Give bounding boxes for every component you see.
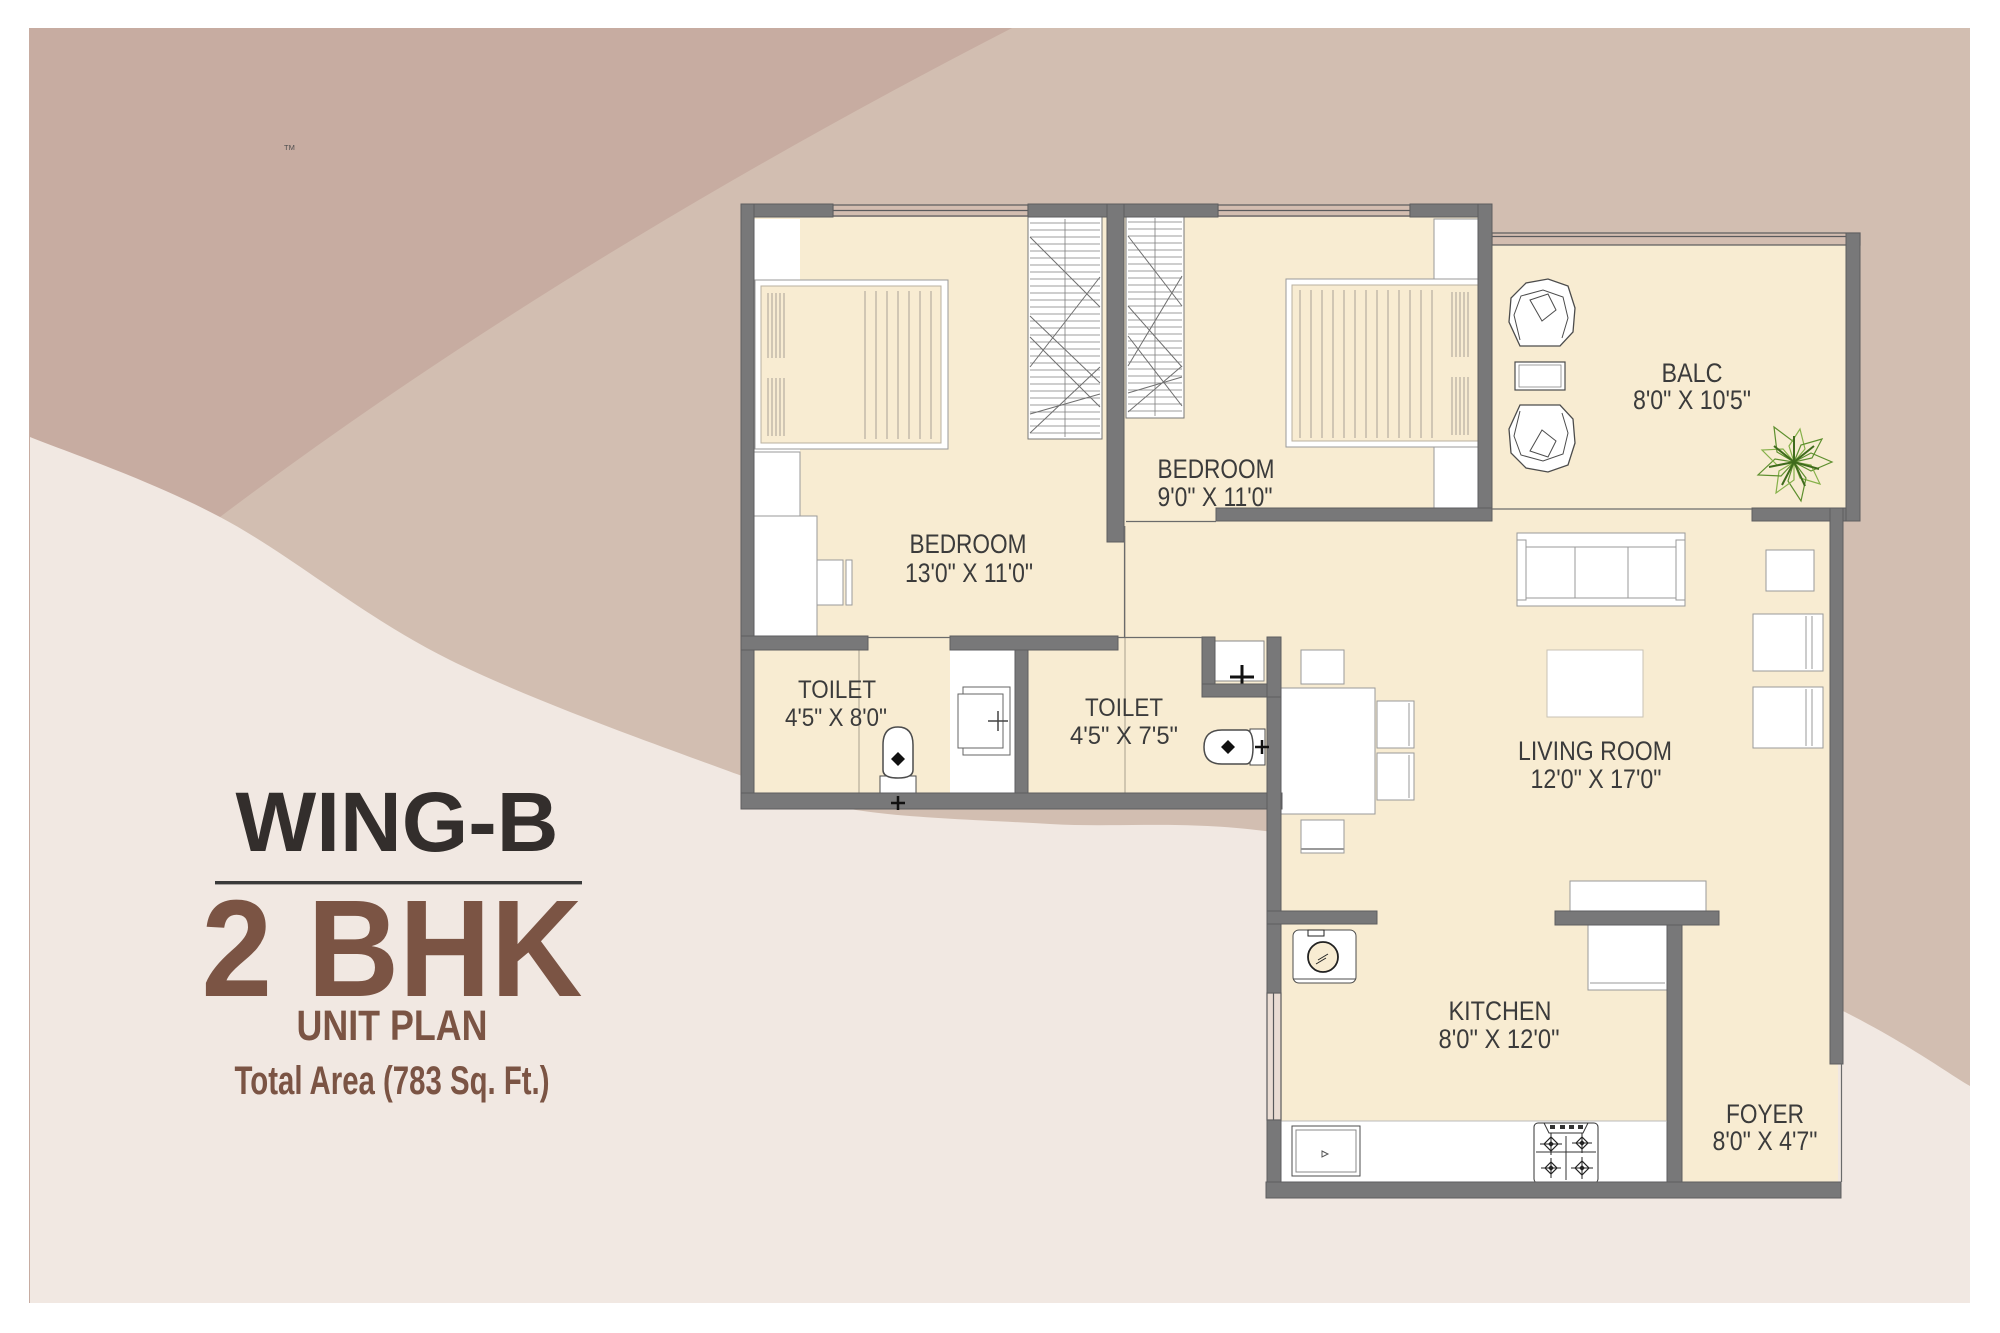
svg-text:8'0" X 10'5": 8'0" X 10'5"	[1633, 385, 1751, 415]
svg-text:LIVING ROOM: LIVING ROOM	[1518, 736, 1672, 766]
svg-text:4'5" X 8'0": 4'5" X 8'0"	[785, 704, 887, 732]
svg-text:TOILET: TOILET	[1085, 694, 1163, 722]
svg-text:8'0" X 12'0": 8'0" X 12'0"	[1439, 1024, 1560, 1054]
svg-text:8'0" X 4'7": 8'0" X 4'7"	[1713, 1126, 1818, 1156]
svg-text:TM: TM	[284, 143, 295, 152]
svg-text:13'0" X 11'0": 13'0" X 11'0"	[905, 558, 1033, 588]
svg-text:UNIT PLAN: UNIT PLAN	[297, 1002, 488, 1050]
svg-text:9'0" X 11'0": 9'0" X 11'0"	[1158, 482, 1273, 512]
svg-text:BEDROOM: BEDROOM	[1158, 454, 1275, 484]
svg-text:4'5" X 7'5": 4'5" X 7'5"	[1070, 722, 1178, 750]
svg-text:BEDROOM: BEDROOM	[910, 529, 1027, 559]
svg-text:Total Area (783 Sq. Ft.): Total Area (783 Sq. Ft.)	[235, 1059, 550, 1103]
svg-text:FOYER: FOYER	[1726, 1099, 1804, 1129]
svg-text:KITCHEN: KITCHEN	[1449, 996, 1552, 1026]
svg-text:TOILET: TOILET	[798, 676, 876, 704]
svg-text:BALC: BALC	[1662, 358, 1723, 388]
svg-text:WING-B: WING-B	[236, 775, 559, 869]
svg-text:12'0" X 17'0": 12'0" X 17'0"	[1531, 764, 1662, 794]
